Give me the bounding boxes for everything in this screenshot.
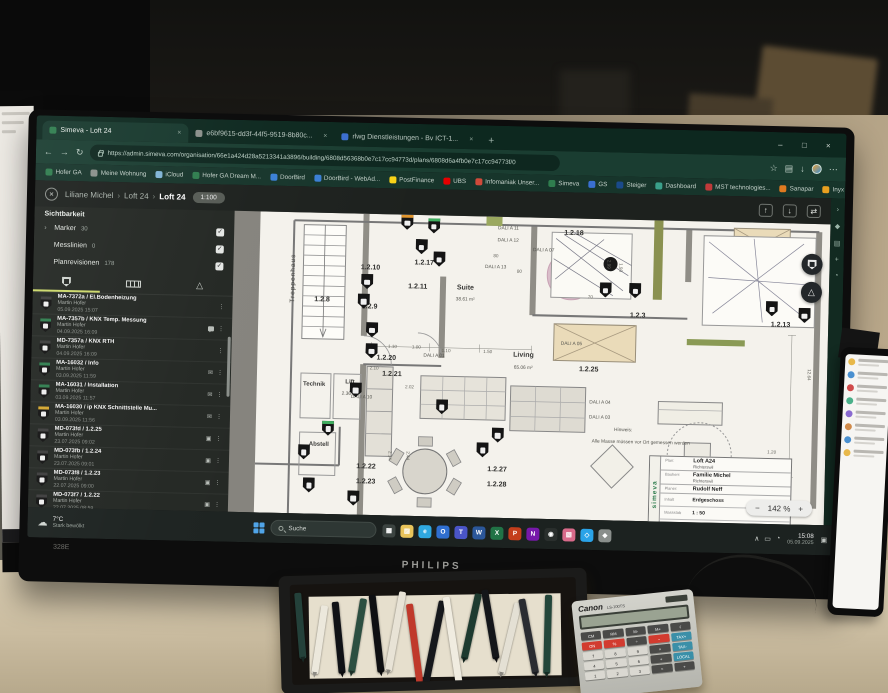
- plan-label: 1.2.17: [414, 260, 434, 267]
- battery-icon[interactable]: ▭: [764, 535, 771, 543]
- pin-glyph: [802, 313, 808, 319]
- tablet-text-lines: [855, 411, 885, 419]
- pin-glyph: [369, 328, 375, 334]
- pin-stripe: [799, 308, 811, 311]
- bookmark-item[interactable]: Hofer GA Dream M...: [192, 172, 261, 181]
- text-line: [857, 376, 878, 379]
- layer-checkbox[interactable]: ✓: [216, 245, 224, 253]
- calc-key: %: [604, 638, 625, 648]
- file-explorer-icon[interactable]: ▨: [400, 524, 413, 537]
- bookmark-label: Meine Wohnung: [101, 170, 147, 178]
- monitor-brand-label: PHILIPS: [402, 559, 462, 571]
- calc-key: 3: [629, 666, 650, 676]
- bookmark-favicon-icon: [91, 170, 98, 177]
- close-button[interactable]: ×: [816, 140, 840, 150]
- calc-key: RM: [603, 628, 624, 638]
- plan-label: 1.2.13: [771, 322, 791, 329]
- pin-glyph: [632, 289, 638, 295]
- weather-widget[interactable]: ☁ 7°C Stark bewölkt: [37, 515, 84, 530]
- calc-key: +: [650, 654, 671, 664]
- tab-title: e6bf9615-dd3f-44f5-9519-8b80c...: [206, 130, 319, 140]
- minimize-button[interactable]: –: [768, 139, 792, 149]
- bookmark-favicon-icon: [588, 181, 595, 188]
- marker-badges: ✉⋮: [207, 391, 222, 398]
- vscode-icon[interactable]: ◇: [580, 528, 593, 541]
- bookmark-favicon-icon: [822, 186, 829, 193]
- pin-glyph: [41, 411, 46, 416]
- bookmark-favicon-icon: [314, 175, 321, 182]
- pin-glyph: [301, 450, 307, 456]
- bookmark-item[interactable]: Simeva: [548, 180, 579, 188]
- pin-stripe: [361, 274, 373, 277]
- bookmark-favicon-icon: [616, 181, 623, 188]
- layer-count: 178: [104, 260, 114, 266]
- plan-label: 38.61 m²: [456, 298, 475, 303]
- plan-label: Living: [513, 352, 534, 359]
- start-button[interactable]: [253, 522, 264, 533]
- download-icon[interactable]: ↓: [800, 164, 805, 174]
- calc-key: 7: [583, 651, 604, 661]
- shield-icon: [807, 259, 816, 269]
- pin-glyph: [439, 405, 445, 411]
- pin-stripe: [433, 251, 445, 254]
- layer-checkbox[interactable]: ✓: [215, 262, 223, 270]
- calc-key: 8: [605, 648, 626, 658]
- plan-label: 2.02: [405, 384, 414, 389]
- kebab-menu-icon[interactable]: ⋮: [215, 435, 221, 442]
- copilot-icon[interactable]: ◆: [835, 222, 841, 230]
- bookmark-label: Inyx AG E-Shop: [832, 186, 845, 194]
- back-icon[interactable]: ←: [44, 146, 53, 157]
- pin-stripe: [303, 477, 315, 480]
- edge-icon[interactable]: e: [418, 525, 431, 538]
- tab-title: rlwg Dienstleistungen - Bv ICT-1...: [352, 133, 465, 143]
- pin-stripe: [350, 382, 362, 385]
- field-label: Planer:: [665, 485, 689, 491]
- tablet-list-row: [847, 384, 887, 393]
- row-value: Erdgeschoss: [692, 497, 724, 504]
- search-label: Suche: [288, 525, 306, 532]
- bookmark-favicon-icon: [389, 176, 396, 183]
- window-line: [2, 121, 24, 124]
- zoom-out-button[interactable]: −: [755, 503, 760, 512]
- settings-icon[interactable]: ◆: [598, 529, 611, 542]
- pin-stripe: [492, 427, 504, 430]
- layer-count: 30: [81, 226, 88, 232]
- text-line: [858, 359, 888, 363]
- tablet-text-lines: [856, 398, 886, 406]
- calc-key: M-: [625, 626, 646, 636]
- kebab-menu-icon[interactable]: ⋮: [217, 347, 223, 354]
- weather-desc: Stark bewölkt: [52, 523, 84, 531]
- bookmark-item[interactable]: UBS: [443, 178, 466, 186]
- bookmark-label: Simeva: [558, 180, 579, 187]
- floor-plan-canvas[interactable]: Treppenhaus1.2.81.2.101.2.91.2.171.2.111…: [228, 211, 831, 525]
- row-value: 1 : 50: [692, 510, 705, 516]
- taskbar-search[interactable]: Suche: [270, 520, 376, 538]
- pin-glyph: [43, 323, 48, 328]
- tablet-app-icon: [848, 358, 855, 365]
- tab-markers[interactable]: [33, 272, 100, 293]
- bookmark-label: GS: [598, 181, 607, 188]
- field-value: Loft A24Richterswil: [693, 458, 715, 469]
- collections-icon[interactable]: ▤: [834, 239, 841, 247]
- plan-label: 1.90: [618, 263, 623, 272]
- history-icon[interactable]: ◔: [834, 272, 838, 279]
- pin-glyph: [361, 299, 367, 305]
- kebab-menu-icon[interactable]: ⋮: [218, 303, 224, 310]
- pin-stripe: [38, 428, 49, 431]
- text-line: [854, 441, 875, 444]
- bookmark-item[interactable]: PostFinance: [389, 176, 434, 184]
- field-value-sub: Richterswil: [693, 464, 715, 469]
- plan-label: Technik: [303, 381, 325, 388]
- plan-label: 12.64: [807, 369, 812, 381]
- kebab-menu-icon[interactable]: ⋮: [216, 413, 222, 420]
- breadcrumb-segment[interactable]: Loft 24: [124, 191, 149, 201]
- profile-avatar[interactable]: [812, 164, 822, 174]
- layer-checkbox[interactable]: ✓: [216, 228, 224, 236]
- field-label: Plan:: [665, 457, 689, 463]
- close-plan-icon[interactable]: ×: [45, 187, 58, 200]
- onenote-icon[interactable]: N: [526, 527, 539, 540]
- plan-label: 1.2.27: [487, 466, 507, 473]
- bookmark-item[interactable]: Dashboard: [655, 182, 696, 190]
- tab-close-icon[interactable]: ×: [177, 129, 181, 136]
- calc-key: ÷: [626, 636, 647, 646]
- mail-icon: ✉: [208, 369, 213, 376]
- breadcrumb-segment[interactable]: Liliane Michel: [65, 189, 114, 199]
- bookmark-item[interactable]: Hofer GA: [45, 168, 81, 176]
- zoom-level: 142 %: [768, 503, 791, 513]
- photo-scene: 15:08 Simeva - Loft 24×e6bf9615-dd3f-44f…: [0, 0, 888, 693]
- bookmark-label: Infomaniak Unser...: [485, 178, 539, 186]
- plan-label: DALI A 01: [423, 354, 444, 359]
- marker-badges: ▣⋮: [206, 435, 222, 442]
- bookmark-favicon-icon: [655, 182, 662, 189]
- collections-icon[interactable]: ▤: [785, 163, 794, 174]
- breadcrumb[interactable]: Liliane Michel›Loft 24›Loft 24: [65, 189, 186, 201]
- calc-key: M+: [647, 624, 668, 634]
- marker-pin-icon: [37, 450, 48, 464]
- bookmark-label: DoorBird - WebAd...: [324, 175, 380, 183]
- bookmark-favicon-icon: [705, 183, 712, 190]
- plan-label: DALI A 11: [498, 226, 519, 231]
- kebab-menu-icon[interactable]: ⋮: [216, 391, 222, 398]
- bookmark-favicon-icon: [192, 172, 199, 179]
- bookmark-item[interactable]: Inyx AG E-Shop: [822, 186, 845, 194]
- plan-label: 2.44: [405, 451, 410, 460]
- calc-key: TAX-: [672, 641, 693, 651]
- marker-pin-icon: [38, 406, 49, 420]
- marker-badges: ▣⋮: [205, 479, 221, 486]
- layer-label: Marker: [54, 225, 76, 232]
- simeva-app: × Liliane Michel›Loft 24›Loft 24 1:100 ↑…: [28, 180, 831, 525]
- forward-icon[interactable]: →: [60, 146, 69, 157]
- plan-label: 1.2.11: [408, 283, 427, 290]
- maximize-button[interactable]: □: [792, 140, 816, 150]
- tab-revisions[interactable]: △: [166, 275, 233, 296]
- photos-icon[interactable]: ◉: [544, 527, 557, 540]
- kebab-menu-icon[interactable]: ⋮: [215, 457, 221, 464]
- marker-badges: ▣⋮: [204, 501, 220, 508]
- calculator-brand: Canon: [578, 602, 604, 614]
- solar-panel: [665, 594, 688, 602]
- plan-label: 65.06 m²: [514, 365, 533, 370]
- calc-key: 1: [585, 670, 606, 680]
- plan-label: 1.2.22: [356, 463, 376, 470]
- calc-key: TAX+: [671, 631, 692, 641]
- plan-label: 1.2.21: [382, 370, 402, 377]
- pen-tray-inner: [290, 577, 579, 685]
- marker-badges: ⋮: [217, 347, 223, 354]
- calc-key: LOCAL: [673, 651, 694, 661]
- tablet-text-lines: [857, 372, 887, 380]
- bookmark-label: UBS: [453, 178, 466, 185]
- marker-texts: MD-073fb / 1.2.24Martin Hofer23.07.2025 …: [54, 448, 200, 471]
- taskbar-clock[interactable]: 15:08 05.09.2025: [787, 532, 814, 547]
- pin-glyph: [404, 220, 410, 226]
- notification-icon[interactable]: ▣: [821, 536, 828, 544]
- marker-pin-icon: [38, 384, 49, 398]
- pin-glyph: [495, 433, 501, 439]
- field-label: Bauherr:: [665, 471, 689, 477]
- text-line: [856, 398, 886, 402]
- word-icon[interactable]: W: [472, 526, 485, 539]
- teams-icon[interactable]: T: [454, 525, 467, 538]
- pin-stripe: [40, 340, 51, 343]
- pin-stripe: [629, 283, 641, 286]
- calc-key: 9: [627, 646, 648, 656]
- tab-favicon-icon: [195, 130, 202, 137]
- text-line: [856, 411, 886, 415]
- pin-glyph: [480, 448, 486, 454]
- pin-glyph: [603, 288, 609, 294]
- tab-close-icon[interactable]: ×: [469, 136, 473, 143]
- pin-stripe: [600, 282, 612, 285]
- marker-texts: MA-7372a / El.BodenheizungMartin Hofer05…: [57, 294, 212, 317]
- bookmark-label: Dashboard: [665, 183, 696, 191]
- calc-key: √: [670, 621, 691, 631]
- pin-stripe: [436, 399, 448, 402]
- plan-label: 1.2.3: [630, 313, 646, 320]
- shield-icon: [62, 276, 71, 286]
- reload-icon[interactable]: ↻: [76, 147, 84, 158]
- pin-stripe: [36, 494, 47, 497]
- marker-pin-icon: [36, 472, 47, 486]
- task-view-icon[interactable]: ▦: [382, 524, 395, 537]
- screen: Simeva - Loft 24×e6bf9615-dd3f-44f5-9519…: [27, 115, 846, 555]
- plan-label: 1.20: [767, 449, 776, 454]
- bookmark-favicon-icon: [475, 178, 482, 185]
- outlook-icon[interactable]: O: [436, 525, 449, 538]
- bookmark-item[interactable]: iCloud: [155, 171, 183, 179]
- plan-label: 1.2.18: [564, 230, 584, 237]
- bookmark-item[interactable]: Meine Wohnung: [91, 170, 147, 178]
- tab-title: Simeva - Loft 24: [60, 127, 173, 137]
- text-line: [853, 454, 874, 457]
- pin-stripe: [40, 318, 51, 321]
- lock-icon: [97, 151, 102, 156]
- tablet-list-row: [845, 410, 885, 419]
- bookmark-favicon-icon: [45, 168, 52, 175]
- pin-stripe: [366, 343, 378, 346]
- calc-key: =: [652, 663, 673, 673]
- plan-label: Suite: [457, 285, 474, 292]
- pin-stripe: [38, 406, 49, 409]
- calc-key: ON: [582, 641, 603, 651]
- plan-label: 2.14: [387, 451, 392, 460]
- main-monitor: Simeva - Loft 24×e6bf9615-dd3f-44f5-9519…: [18, 109, 854, 600]
- tablet-app-icon: [847, 371, 854, 378]
- scale-badge: 1:100: [192, 191, 225, 203]
- powerpoint-icon[interactable]: P: [508, 527, 521, 540]
- bookmark-label: Hofer GA: [55, 169, 81, 177]
- zoom-in-button[interactable]: +: [798, 504, 803, 513]
- export-icon[interactable]: ↑: [759, 203, 773, 216]
- favorite-icon[interactable]: ☆: [770, 162, 778, 173]
- kebab-menu-icon[interactable]: ⋮: [214, 479, 220, 486]
- paint-icon[interactable]: ▧: [562, 528, 575, 541]
- kebab-menu-icon[interactable]: ⋮: [218, 325, 224, 332]
- breadcrumb-separator: ›: [152, 191, 155, 200]
- tray-chevron-icon[interactable]: ∧: [754, 535, 759, 543]
- menu-icon[interactable]: ⋯: [829, 164, 838, 175]
- plan-label: 1.2.10: [361, 264, 381, 271]
- bookmark-favicon-icon: [443, 178, 450, 185]
- field-value: Familie MichelRichterswil: [693, 472, 731, 484]
- marker-pin-icon: [40, 318, 51, 332]
- pin-stripe: [358, 293, 370, 296]
- breadcrumb-segment[interactable]: Loft 24: [159, 192, 185, 202]
- tablet-list-row: [844, 436, 884, 445]
- layer-label: Planrevisionen: [53, 259, 99, 267]
- pin-stripe: [41, 296, 52, 299]
- plan-label: DALI A 03: [589, 415, 610, 420]
- marker-texts: MA-16032 / InfoMartin Hofer03.09.2025 11…: [56, 360, 202, 383]
- excel-icon[interactable]: X: [490, 526, 503, 539]
- kebab-menu-icon[interactable]: ⋮: [217, 369, 223, 376]
- layer-row-planrevisionen[interactable]: Planrevisionen178✓: [33, 253, 233, 275]
- camera-icon: ▣: [206, 435, 212, 442]
- text-line: [854, 450, 884, 454]
- calc-key: 5: [606, 658, 627, 668]
- plan-label: 1.2.25: [579, 366, 599, 373]
- bookmark-item[interactable]: DoorBird: [270, 174, 305, 182]
- tablet-list-row: [848, 358, 888, 367]
- add-icon[interactable]: +: [835, 256, 839, 263]
- download-icon[interactable]: ↓: [783, 204, 797, 217]
- new-tab-button[interactable]: +: [488, 136, 494, 147]
- marker-badges: ⋮: [218, 303, 224, 310]
- pin-glyph: [39, 499, 44, 504]
- pin-stripe: [766, 301, 778, 304]
- marker-texts: MD-073fd / 1.2.25Martin Hofer23.07.2025 …: [54, 426, 200, 449]
- calc-key: ×: [649, 644, 670, 654]
- bookmark-label: Steiger: [626, 182, 646, 189]
- bookmark-favicon-icon: [270, 174, 277, 181]
- plan-label: DALI A 07: [533, 248, 554, 253]
- pen-tray: [278, 568, 589, 693]
- plan-label: 1.2.8: [314, 296, 330, 303]
- bookmark-item[interactable]: Infomaniak Unser...: [475, 178, 539, 186]
- tablet-app-icon: [847, 384, 854, 391]
- pin-glyph: [364, 279, 370, 285]
- marker-texts: MA-16031 / InstallationMartin Hofer03.09…: [55, 382, 201, 405]
- bookmark-label: PostFinance: [399, 177, 434, 185]
- marker-texts: MA-7357b / KNX Temp. MessungMartin Hofer…: [57, 316, 202, 339]
- sidebar-collapse-icon[interactable]: ›: [837, 206, 840, 213]
- camera-icon: ▣: [205, 457, 211, 464]
- field-value-sub: Richterswil: [693, 478, 731, 484]
- pin-glyph: [369, 349, 375, 355]
- bookmark-label: MST technologies...: [715, 184, 771, 192]
- sync-icon[interactable]: ⇄: [807, 204, 821, 217]
- tablet-screen: [832, 354, 888, 610]
- plan-label: Abstell: [309, 441, 329, 447]
- mail-icon: ✉: [207, 391, 212, 398]
- pin-glyph: [40, 433, 45, 438]
- bookmark-item[interactable]: DoorBird - WebAd...: [314, 175, 380, 184]
- bookmark-favicon-icon: [548, 180, 555, 187]
- marker-pin-icon: [40, 296, 51, 310]
- bookmark-item[interactable]: GS: [588, 181, 607, 188]
- clock-date: 05.09.2025: [787, 539, 814, 547]
- pin-stripe: [322, 421, 334, 424]
- plan-label: 1.10: [388, 344, 397, 349]
- field-value-main: Rudolf Neff: [693, 486, 723, 493]
- marker-texts: MD-7357a / KNX RTHMartin Hofer04.09.2025…: [56, 338, 211, 361]
- tablet-list-row: [845, 423, 885, 432]
- window-line: [2, 112, 30, 115]
- calculator-keypad: CMRMM-M+√ON%÷−TAX+789×TAX-456+LOCAL123=+: [581, 621, 695, 680]
- network-icon[interactable]: ◔: [776, 535, 780, 543]
- pin-stripe: [347, 490, 359, 493]
- pin-glyph: [43, 301, 48, 306]
- plan-label: 80: [517, 269, 522, 274]
- tab-close-icon[interactable]: ×: [323, 133, 327, 140]
- text-line: [856, 402, 877, 405]
- mail-icon: ✉: [207, 413, 212, 420]
- text-line: [857, 389, 878, 392]
- monitor-model-label: 328E: [53, 544, 70, 551]
- calc-key: −: [648, 634, 669, 644]
- kebab-menu-icon[interactable]: ⋮: [214, 501, 220, 508]
- plan-label: DALI A 13: [485, 265, 506, 270]
- marker-list: MA-7372a / El.BodenheizungMartin Hofer05…: [28, 292, 233, 511]
- bookmark-favicon-icon: [780, 185, 787, 192]
- marker-pin-icon: [39, 362, 50, 376]
- field-value: Rudolf Neff: [693, 486, 723, 493]
- text-line: [858, 372, 888, 376]
- pin-glyph: [306, 483, 312, 489]
- pin-glyph: [769, 307, 775, 313]
- bookmark-item[interactable]: Sanapar: [780, 185, 814, 193]
- pin-glyph: [431, 224, 437, 230]
- text-line: [855, 428, 876, 431]
- bookmark-favicon-icon: [155, 171, 162, 178]
- pin-stripe: [37, 472, 48, 475]
- bookmark-item[interactable]: MST technologies...: [705, 183, 771, 191]
- chevron-icon: ›: [44, 224, 49, 231]
- plan-label: 1.2.23: [356, 478, 376, 485]
- tab-measurements[interactable]: [99, 274, 166, 295]
- plan-label: DALI A 04: [589, 400, 610, 405]
- bookmark-item[interactable]: Steiger: [616, 181, 646, 189]
- triangle-icon: △: [196, 280, 203, 291]
- plan-label: DALI A 12: [497, 238, 518, 243]
- pin-glyph: [351, 496, 357, 502]
